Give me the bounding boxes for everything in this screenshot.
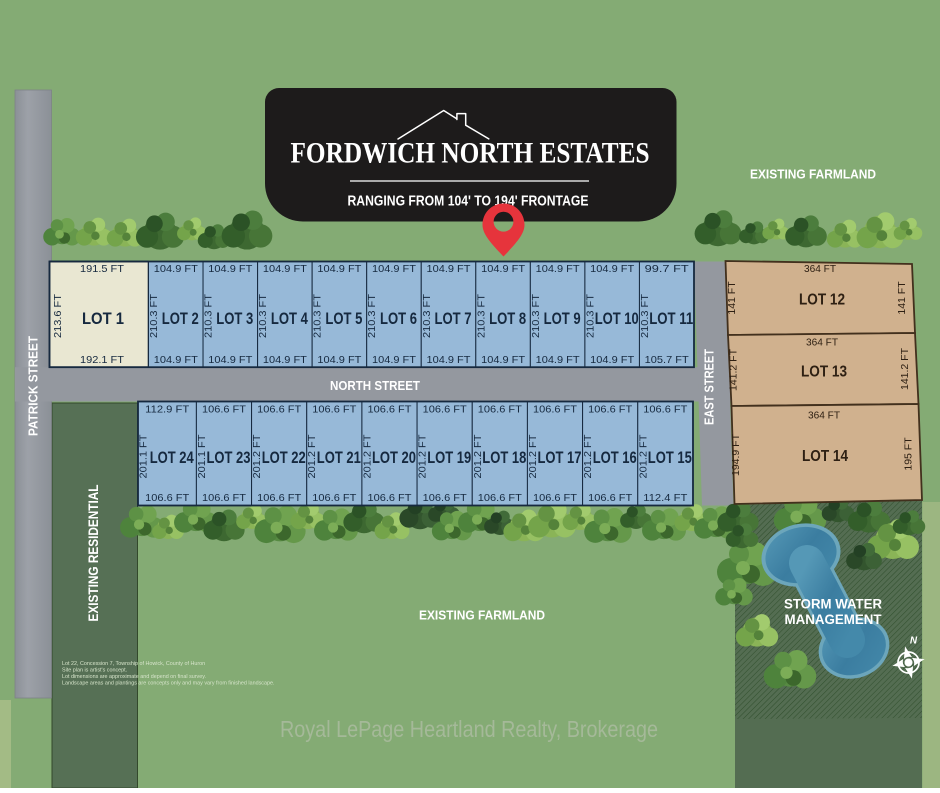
svg-text:210.3 FT: 210.3 FT xyxy=(366,293,378,338)
svg-text:STORM WATER: STORM WATER xyxy=(784,597,882,612)
svg-text:LOT 12: LOT 12 xyxy=(799,292,845,309)
svg-text:MANAGEMENT: MANAGEMENT xyxy=(785,612,883,627)
svg-text:104.9 FT: 104.9 FT xyxy=(536,354,581,366)
svg-text:192.1 FT: 192.1 FT xyxy=(80,354,125,366)
svg-text:106.6 FT: 106.6 FT xyxy=(533,492,578,504)
svg-text:LOT 18: LOT 18 xyxy=(482,448,526,467)
svg-text:LOT 19: LOT 19 xyxy=(427,448,471,467)
svg-text:104.9 FT: 104.9 FT xyxy=(536,263,581,275)
svg-text:104.9 FT: 104.9 FT xyxy=(263,263,308,275)
svg-text:112.9 FT: 112.9 FT xyxy=(145,404,190,416)
svg-text:LOT 6: LOT 6 xyxy=(380,309,417,328)
svg-text:104.9 FT: 104.9 FT xyxy=(590,263,635,275)
svg-text:141 FT: 141 FT xyxy=(726,281,738,315)
svg-text:104.9 FT: 104.9 FT xyxy=(590,354,635,366)
svg-text:104.9 FT: 104.9 FT xyxy=(208,354,253,366)
svg-text:106.6 FT: 106.6 FT xyxy=(643,404,688,416)
svg-text:104.9 FT: 104.9 FT xyxy=(263,354,308,366)
svg-text:106.6 FT: 106.6 FT xyxy=(145,492,190,504)
svg-text:210.3 FT: 210.3 FT xyxy=(530,293,542,338)
svg-text:141.2 FT: 141.2 FT xyxy=(728,348,740,391)
svg-text:N: N xyxy=(910,636,918,647)
svg-text:364 FT: 364 FT xyxy=(808,410,841,422)
svg-text:LOT 11: LOT 11 xyxy=(649,309,693,328)
svg-text:106.6 FT: 106.6 FT xyxy=(423,404,468,416)
svg-text:Landscape areas and plantings: Landscape areas and plantings are concep… xyxy=(62,681,274,687)
svg-text:210.3 FT: 210.3 FT xyxy=(421,293,433,338)
svg-text:LOT 16: LOT 16 xyxy=(593,448,637,467)
svg-text:106.6 FT: 106.6 FT xyxy=(257,492,302,504)
svg-text:104.9 FT: 104.9 FT xyxy=(317,263,362,275)
svg-text:EXISTING RESIDENTIAL: EXISTING RESIDENTIAL xyxy=(86,485,101,622)
svg-text:210.3 FT: 210.3 FT xyxy=(257,293,269,338)
svg-text:LOT 2: LOT 2 xyxy=(162,309,199,328)
svg-text:LOT 8: LOT 8 xyxy=(489,309,526,328)
svg-text:104.9 FT: 104.9 FT xyxy=(154,263,199,275)
svg-text:106.6 FT: 106.6 FT xyxy=(423,492,468,504)
svg-text:210.3 FT: 210.3 FT xyxy=(475,293,487,338)
svg-text:LOT 3: LOT 3 xyxy=(216,309,253,328)
svg-text:201.1 FT: 201.1 FT xyxy=(138,434,150,479)
svg-text:104.9 FT: 104.9 FT xyxy=(481,354,526,366)
svg-text:EXISTING FARMLAND: EXISTING FARMLAND xyxy=(419,609,545,623)
svg-text:Site plan is artist's concept.: Site plan is artist's concept. xyxy=(62,668,127,674)
svg-text:LOT 24: LOT 24 xyxy=(150,448,194,467)
svg-text:210.3 FT: 210.3 FT xyxy=(312,293,324,338)
svg-text:364 FT: 364 FT xyxy=(806,337,839,349)
svg-text:364 FT: 364 FT xyxy=(804,263,837,275)
svg-text:104.9 FT: 104.9 FT xyxy=(372,263,417,275)
svg-text:104.9 FT: 104.9 FT xyxy=(427,263,472,275)
svg-text:195 FT: 195 FT xyxy=(903,437,915,471)
svg-text:106.6 FT: 106.6 FT xyxy=(202,492,247,504)
svg-text:106.6 FT: 106.6 FT xyxy=(312,404,357,416)
svg-text:Lot dimensions are approximate: Lot dimensions are approximate and depen… xyxy=(62,674,206,680)
svg-text:LOT 1: LOT 1 xyxy=(82,309,124,328)
svg-text:104.9 FT: 104.9 FT xyxy=(154,354,199,366)
svg-text:Lot 22, Concession 7, Township: Lot 22, Concession 7, Township of Howick… xyxy=(62,661,205,667)
svg-text:LOT 20: LOT 20 xyxy=(372,448,416,467)
svg-text:210.3 FT: 210.3 FT xyxy=(148,293,160,338)
svg-text:112.4 FT: 112.4 FT xyxy=(643,492,688,504)
svg-text:LOT 9: LOT 9 xyxy=(544,309,581,328)
svg-text:RANGING FROM 104' TO 194' FRON: RANGING FROM 104' TO 194' FRONTAGE xyxy=(348,194,589,210)
svg-text:NORTH STREET: NORTH STREET xyxy=(330,379,420,393)
svg-text:106.6 FT: 106.6 FT xyxy=(257,404,302,416)
svg-text:104.9 FT: 104.9 FT xyxy=(481,263,526,275)
svg-text:104.9 FT: 104.9 FT xyxy=(372,354,417,366)
svg-text:LOT 21: LOT 21 xyxy=(317,448,361,467)
svg-text:213.6 FT: 213.6 FT xyxy=(52,293,64,338)
svg-text:191.5 FT: 191.5 FT xyxy=(80,263,125,275)
svg-text:106.6 FT: 106.6 FT xyxy=(478,404,523,416)
svg-text:105.7 FT: 105.7 FT xyxy=(645,354,690,366)
svg-text:106.6 FT: 106.6 FT xyxy=(202,404,247,416)
svg-text:106.6 FT: 106.6 FT xyxy=(588,404,633,416)
svg-text:104.9 FT: 104.9 FT xyxy=(427,354,472,366)
svg-text:106.6 FT: 106.6 FT xyxy=(312,492,357,504)
svg-text:104.9 FT: 104.9 FT xyxy=(208,263,253,275)
svg-text:LOT 4: LOT 4 xyxy=(271,309,308,328)
svg-text:LOT 23: LOT 23 xyxy=(207,448,251,467)
svg-text:PATRICK STREET: PATRICK STREET xyxy=(27,336,41,436)
svg-text:LOT 7: LOT 7 xyxy=(435,309,472,328)
svg-text:LOT 13: LOT 13 xyxy=(801,364,847,381)
svg-text:99.7 FT: 99.7 FT xyxy=(645,263,690,275)
svg-text:LOT 5: LOT 5 xyxy=(325,309,362,328)
svg-text:LOT 22: LOT 22 xyxy=(262,448,306,467)
svg-text:FORDWICH NORTH ESTATES: FORDWICH NORTH ESTATES xyxy=(291,138,650,170)
svg-text:LOT 14: LOT 14 xyxy=(802,448,848,465)
svg-text:104.9 FT: 104.9 FT xyxy=(317,354,362,366)
svg-text:Royal LePage Heartland Realty,: Royal LePage Heartland Realty, Brokerage xyxy=(280,716,658,742)
svg-text:EAST STREET: EAST STREET xyxy=(703,349,717,425)
svg-text:LOT 17: LOT 17 xyxy=(538,448,582,467)
svg-text:210.3 FT: 210.3 FT xyxy=(203,293,215,338)
svg-text:194.9 FT: 194.9 FT xyxy=(730,433,742,476)
svg-text:EXISTING FARMLAND: EXISTING FARMLAND xyxy=(750,168,876,182)
svg-text:LOT 10: LOT 10 xyxy=(595,309,639,328)
svg-text:141 FT: 141 FT xyxy=(896,281,908,315)
svg-text:106.6 FT: 106.6 FT xyxy=(368,404,413,416)
svg-text:106.6 FT: 106.6 FT xyxy=(478,492,523,504)
svg-text:106.6 FT: 106.6 FT xyxy=(533,404,578,416)
svg-text:LOT 15: LOT 15 xyxy=(648,448,692,467)
svg-text:106.6 FT: 106.6 FT xyxy=(368,492,413,504)
svg-text:106.6 FT: 106.6 FT xyxy=(588,492,633,504)
svg-text:141.2 FT: 141.2 FT xyxy=(899,347,911,390)
